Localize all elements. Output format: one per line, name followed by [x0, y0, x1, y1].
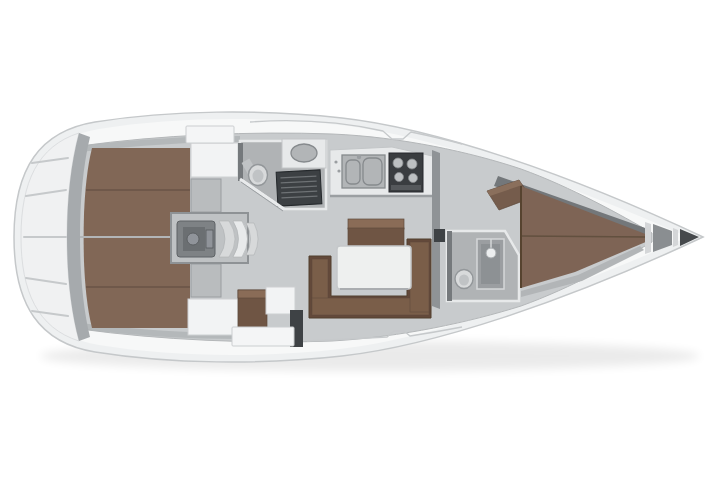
salon-table [337, 246, 411, 289]
stove-rail [391, 185, 421, 190]
stove-burner [393, 158, 403, 168]
wardrobe-starboard [188, 299, 238, 335]
vberth-seam [521, 236, 646, 237]
aft-cabin-center-joint [80, 214, 172, 262]
salon-bench-top [348, 219, 404, 229]
bow-bulkhead [673, 228, 678, 247]
toilet-bowl [459, 275, 469, 286]
floorplan-canvas [0, 0, 720, 480]
forward-head-wall [447, 231, 452, 301]
cabin-locker-port [191, 179, 221, 212]
companionway-seat-top [238, 290, 267, 298]
forward-door-slot [434, 229, 445, 242]
counter-knob [334, 160, 337, 163]
toilet-bowl [253, 170, 264, 183]
stove-burner [407, 159, 417, 169]
galley-sink-left [346, 160, 360, 184]
engine-pulley [187, 233, 199, 245]
aft-berth-starboard [84, 262, 190, 328]
aft-head-wall [238, 143, 243, 181]
galley-sink-right [363, 158, 382, 185]
cabin-locker-starboard [191, 264, 221, 297]
stove-burner [395, 173, 404, 182]
aft-cabin-starboard [84, 262, 238, 335]
settee-cushion-right [410, 242, 429, 312]
stove-burner [409, 174, 418, 183]
shower-head [486, 248, 496, 258]
counter-knob [337, 169, 340, 172]
galley [330, 147, 437, 196]
bow-bulkhead [645, 222, 651, 254]
shower-grate [276, 170, 322, 206]
aft-head-sink-basin [291, 144, 317, 162]
aft-cabin-port [84, 143, 238, 214]
forward-head [447, 231, 519, 301]
galley-faucet [357, 155, 361, 159]
yacht-floorplan-image [0, 0, 720, 480]
wardrobe-port [191, 143, 238, 177]
deck-hatch [186, 126, 234, 143]
companionway-steps [219, 221, 258, 257]
aft-berth-port [84, 148, 190, 214]
engine-manifold [206, 230, 213, 248]
deck-hatch [232, 327, 294, 346]
salon-cabinet [266, 287, 295, 314]
